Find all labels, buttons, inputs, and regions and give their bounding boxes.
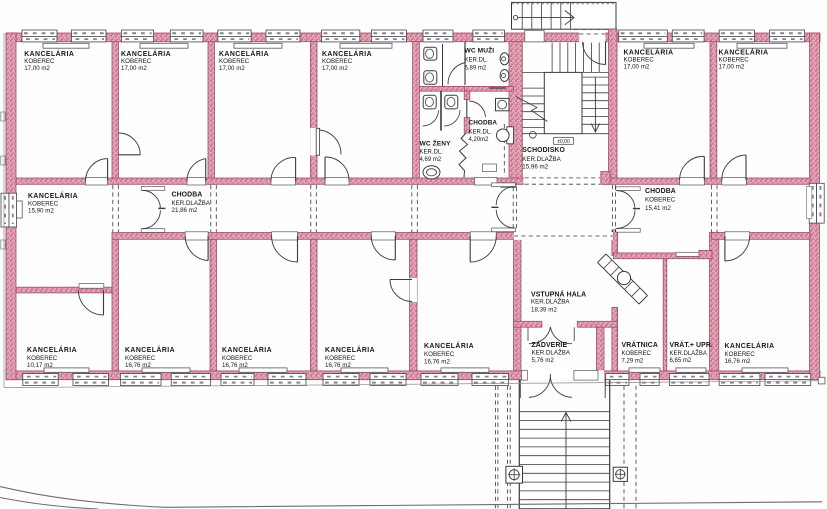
svg-text:KOBEREC: KOBEREC	[24, 58, 55, 65]
svg-text:VRÁTNICA: VRÁTNICA	[622, 340, 658, 349]
svg-text:17,00 m2: 17,00 m2	[719, 63, 745, 70]
svg-text:6,89 m2: 6,89 m2	[465, 65, 487, 71]
svg-text:KANCELÁRIA: KANCELÁRIA	[719, 48, 769, 57]
svg-text:17,00 m2: 17,00 m2	[624, 63, 650, 70]
svg-text:4,20m2: 4,20m2	[469, 137, 490, 143]
svg-text:15,96 m2: 15,96 m2	[522, 163, 548, 170]
svg-text:CHODBA: CHODBA	[172, 192, 203, 199]
svg-text:4,69 m2: 4,69 m2	[420, 157, 442, 163]
svg-text:KOBEREC: KOBEREC	[622, 351, 652, 357]
svg-text:21,86 m2: 21,86 m2	[172, 207, 198, 214]
svg-text:CHODBA: CHODBA	[645, 188, 676, 195]
svg-text:KANCELÁRIA: KANCELÁRIA	[222, 345, 272, 354]
svg-text:KER.DLAŽBA: KER.DLAŽBA	[531, 297, 570, 305]
svg-text:KOBEREC: KOBEREC	[322, 58, 353, 65]
svg-text:ZÁDVERIE: ZÁDVERIE	[532, 340, 568, 349]
svg-text:15,41 m2: 15,41 m2	[645, 205, 671, 212]
svg-text:KER.DLAŽBA: KER.DLAŽBA	[670, 349, 707, 357]
svg-text:KOBEREC: KOBEREC	[719, 56, 750, 63]
svg-text:KER.DL.: KER.DL.	[420, 149, 444, 155]
svg-text:KOBEREC: KOBEREC	[219, 58, 250, 65]
svg-text:KANCELÁRIA: KANCELÁRIA	[125, 345, 175, 354]
svg-text:SCHODISKO: SCHODISKO	[522, 147, 565, 154]
svg-text:KANCELÁRIA: KANCELÁRIA	[121, 49, 171, 58]
svg-text:VRÁT.+ UPR.: VRÁT.+ UPR.	[670, 340, 713, 349]
svg-text:16,76 m2: 16,76 m2	[725, 358, 751, 365]
svg-text:KOBEREC: KOBEREC	[222, 355, 253, 362]
svg-text:±0,00: ±0,00	[557, 139, 570, 145]
svg-text:18,39 m2: 18,39 m2	[531, 307, 557, 314]
svg-text:KANCELÁRIA: KANCELÁRIA	[28, 191, 78, 200]
svg-text:15,90 m2: 15,90 m2	[28, 208, 54, 215]
svg-text:KER.DL.: KER.DL.	[465, 58, 489, 64]
svg-text:KANCELÁRIA: KANCELÁRIA	[24, 49, 74, 58]
svg-text:KOBEREC: KOBEREC	[121, 58, 152, 65]
svg-text:17,00 m2: 17,00 m2	[121, 65, 147, 72]
svg-text:KANCELÁRIA: KANCELÁRIA	[325, 345, 375, 354]
svg-text:16,76 m2: 16,76 m2	[222, 362, 248, 369]
svg-text:17,00 m2: 17,00 m2	[322, 65, 348, 72]
svg-text:VSTUPNÁ HALA: VSTUPNÁ HALA	[531, 290, 586, 299]
svg-text:KANCELÁRIA: KANCELÁRIA	[424, 341, 474, 350]
svg-text:KER.DLAŽBA: KER.DLAŽBA	[522, 155, 561, 163]
svg-text:KOBEREC: KOBEREC	[325, 355, 356, 362]
svg-text:KOBEREC: KOBEREC	[125, 355, 156, 362]
svg-text:5,76 m2: 5,76 m2	[532, 357, 555, 364]
svg-text:WC ŽENY: WC ŽENY	[420, 139, 452, 148]
svg-text:KOBEREC: KOBEREC	[725, 351, 756, 358]
svg-text:KOBEREC: KOBEREC	[645, 196, 676, 203]
svg-text:KOBEREC: KOBEREC	[28, 200, 59, 207]
svg-text:KANCELÁRIA: KANCELÁRIA	[219, 49, 269, 58]
svg-text:KER.DL.: KER.DL.	[469, 130, 493, 136]
svg-text:10,17 m2: 10,17 m2	[27, 362, 53, 369]
svg-text:KANCELÁRIA: KANCELÁRIA	[27, 345, 77, 354]
svg-text:KANCELÁRIA: KANCELÁRIA	[725, 341, 775, 350]
svg-text:6,65 m2: 6,65 m2	[670, 358, 692, 364]
svg-text:KER.DLAŽBA: KER.DLAŽBA	[532, 349, 571, 357]
svg-text:KOBEREC: KOBEREC	[27, 355, 58, 362]
svg-text:KOBEREC: KOBEREC	[424, 351, 455, 358]
svg-text:17,00 m2: 17,00 m2	[24, 65, 50, 72]
svg-text:16,76 m2: 16,76 m2	[424, 358, 450, 365]
svg-text:KANCELÁRIA: KANCELÁRIA	[624, 48, 674, 57]
svg-text:KANCELÁRIA: KANCELÁRIA	[322, 49, 372, 58]
svg-text:7,29 m2: 7,29 m2	[622, 358, 644, 364]
svg-text:KOBEREC: KOBEREC	[624, 56, 655, 63]
svg-text:16,76 m2: 16,76 m2	[325, 362, 351, 369]
svg-text:17,00 m2: 17,00 m2	[219, 65, 245, 72]
svg-text:CHODBA: CHODBA	[469, 119, 498, 126]
svg-text:WC MUŽI: WC MUŽI	[465, 46, 495, 55]
svg-text:KER.DLAŽBA: KER.DLAŽBA	[172, 199, 211, 207]
svg-text:16,76 m2: 16,76 m2	[125, 362, 151, 369]
